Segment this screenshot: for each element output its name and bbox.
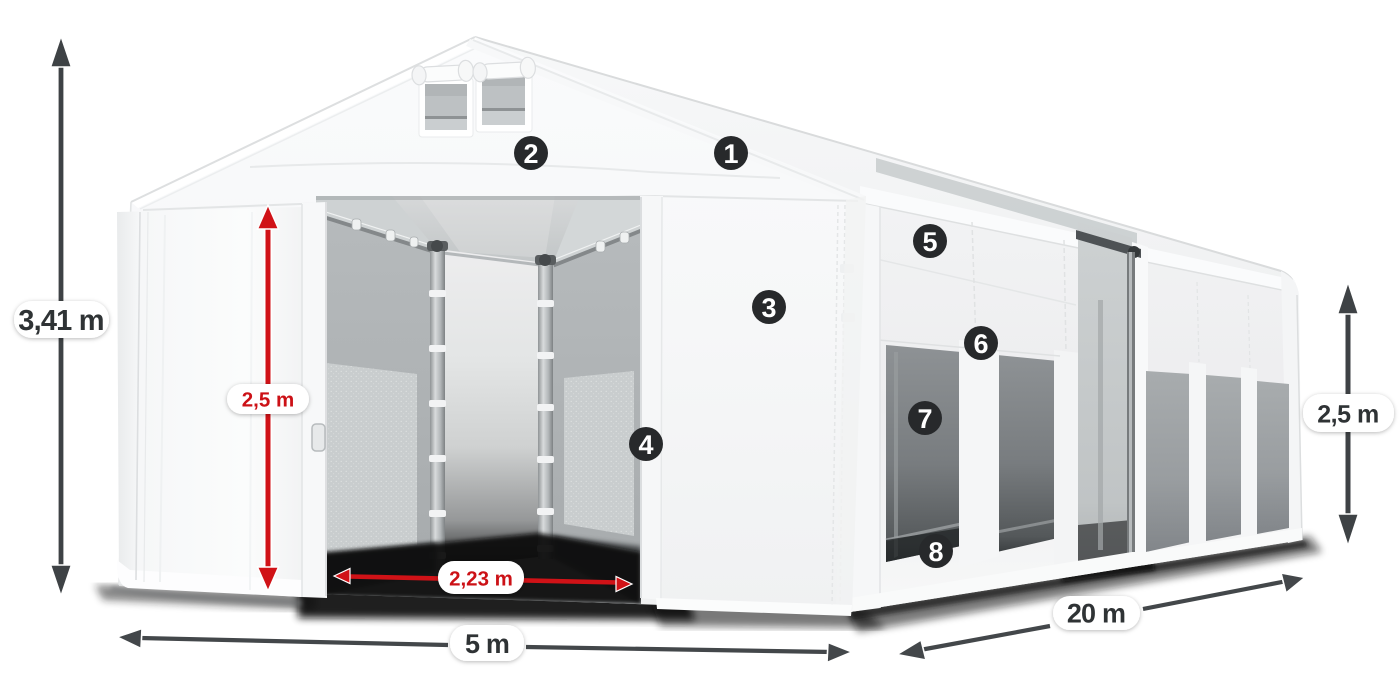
- svg-text:1: 1: [723, 139, 738, 169]
- svg-text:20 m: 20 m: [1067, 599, 1125, 629]
- svg-text:7: 7: [917, 404, 932, 434]
- svg-text:2: 2: [523, 139, 538, 169]
- svg-text:2,5 m: 2,5 m: [1317, 401, 1378, 429]
- svg-text:8: 8: [928, 537, 943, 567]
- svg-text:5 m: 5 m: [465, 629, 509, 659]
- svg-text:4: 4: [638, 430, 653, 460]
- svg-text:5: 5: [922, 227, 937, 257]
- svg-text:2,5 m: 2,5 m: [242, 389, 294, 412]
- svg-text:2,23 m: 2,23 m: [449, 568, 513, 591]
- svg-text:6: 6: [973, 329, 988, 359]
- svg-text:3: 3: [761, 293, 776, 323]
- svg-text:3,41 m: 3,41 m: [18, 305, 104, 337]
